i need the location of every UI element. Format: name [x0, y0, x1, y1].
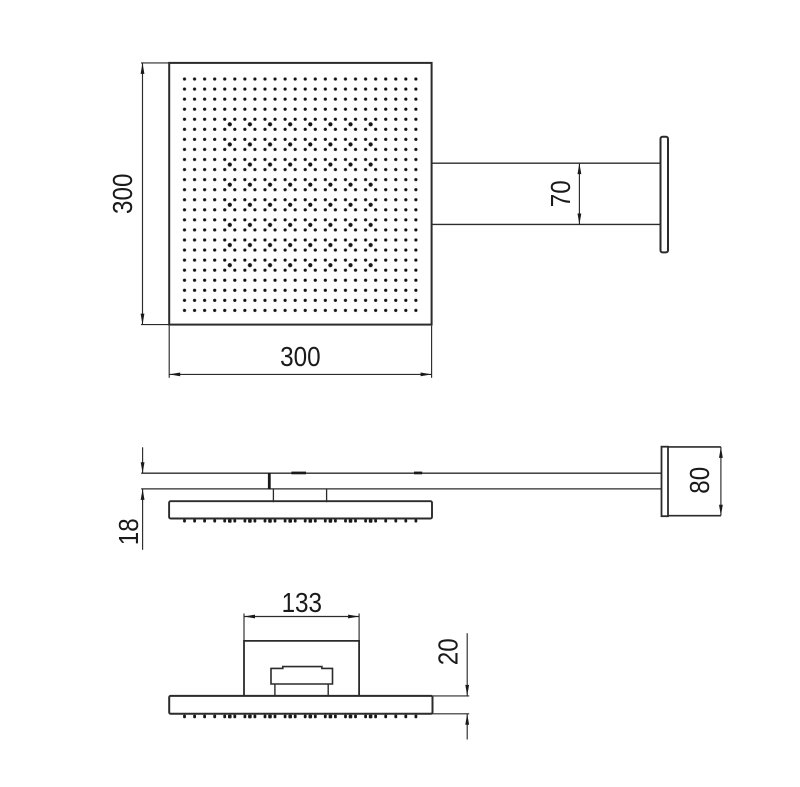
svg-text:300: 300	[280, 340, 320, 372]
svg-text:133: 133	[282, 586, 322, 618]
svg-text:80: 80	[683, 467, 715, 494]
svg-text:70: 70	[544, 180, 576, 207]
svg-text:300: 300	[106, 174, 138, 214]
svg-text:20: 20	[432, 638, 464, 665]
svg-text:18: 18	[112, 518, 144, 545]
